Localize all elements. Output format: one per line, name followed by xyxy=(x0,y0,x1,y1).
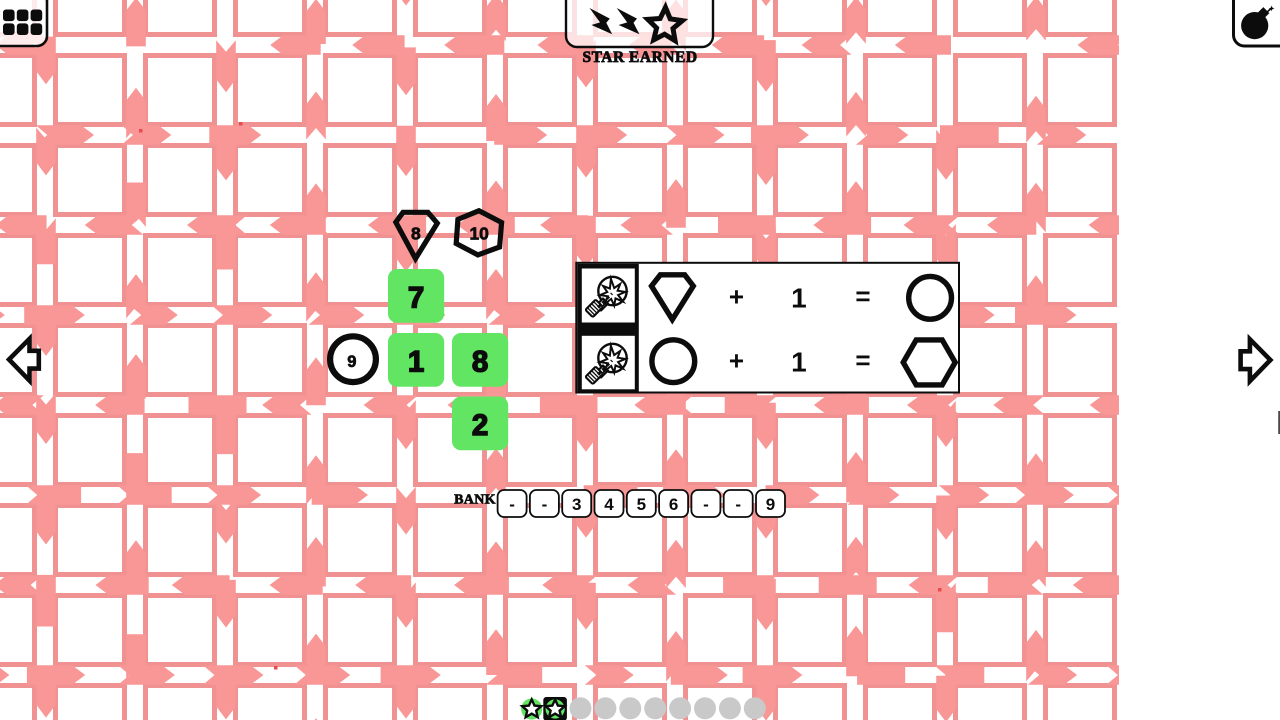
svg-text:BANK: BANK xyxy=(454,493,496,508)
svg-text:=: = xyxy=(855,345,870,375)
svg-text:8: 8 xyxy=(411,223,421,243)
svg-text:2: 2 xyxy=(472,409,488,442)
svg-text:6: 6 xyxy=(669,495,678,514)
svg-text:-: - xyxy=(735,495,741,514)
svg-text:+: + xyxy=(729,346,744,376)
svg-text:=: = xyxy=(855,281,870,311)
svg-text:1: 1 xyxy=(408,345,424,378)
svg-text:1: 1 xyxy=(791,283,807,314)
svg-text:4: 4 xyxy=(604,495,614,514)
svg-text:3: 3 xyxy=(572,495,581,514)
svg-text:10: 10 xyxy=(469,223,489,243)
svg-text:8: 8 xyxy=(472,345,488,378)
svg-text:9: 9 xyxy=(766,495,775,514)
svg-text:5: 5 xyxy=(637,495,646,514)
svg-text:1: 1 xyxy=(791,347,807,378)
svg-text:-: - xyxy=(703,495,709,514)
svg-text:-: - xyxy=(509,495,515,514)
svg-text:7: 7 xyxy=(408,281,424,314)
svg-text:+: + xyxy=(729,282,744,312)
svg-text:9: 9 xyxy=(347,353,356,371)
svg-text:STAR EARNED: STAR EARNED xyxy=(582,49,697,66)
svg-text:-: - xyxy=(542,495,548,514)
